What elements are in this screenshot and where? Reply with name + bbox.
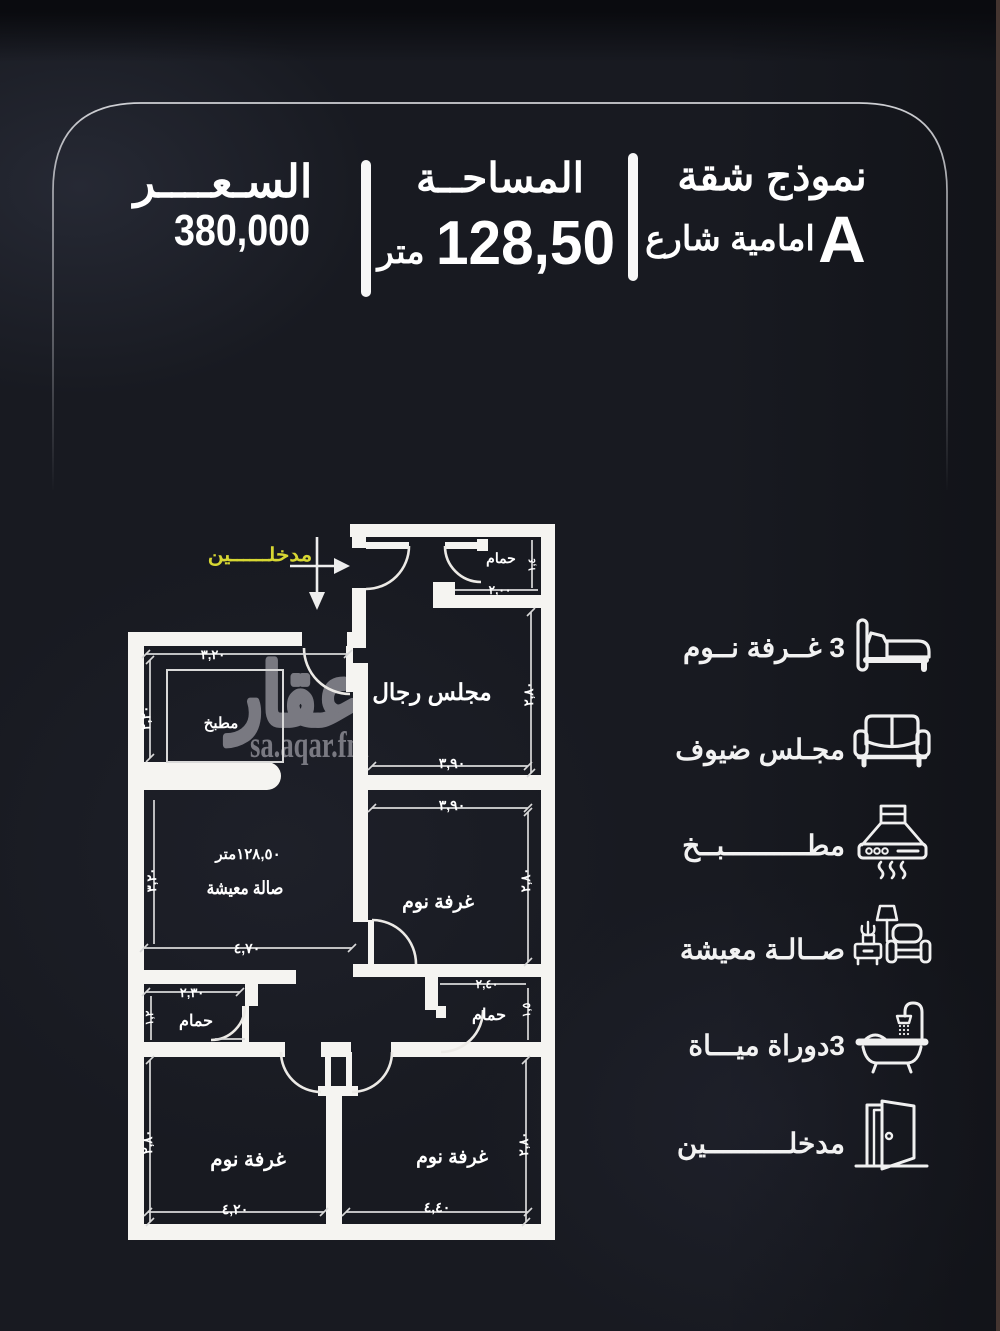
svg-text:٢,٠٠: ٢,٠٠ [489,583,512,597]
svg-text:المساحــة: المساحــة [416,155,584,201]
svg-text:مدخلــــــين: مدخلــــــين [208,545,313,566]
svg-text:حمام: حمام [486,550,516,567]
svg-text:امامية شارع: امامية شارع [645,220,815,259]
svg-text:٢,٨٠: ٢,٨٠ [140,1130,155,1155]
svg-text:٣,٩٠: ٣,٩٠ [439,797,465,813]
svg-text:sa.aqar.fm: sa.aqar.fm [250,724,369,765]
svg-text:صالة معيشة: صالة معيشة [207,878,284,898]
svg-text:١٢٨,٥٠متر: ١٢٨,٥٠متر [214,846,280,863]
svg-text:٤,٤٠: ٤,٤٠ [424,1199,450,1215]
svg-text:مجلس رجال: مجلس رجال [372,679,492,707]
svg-text:غرفة نوم: غرفة نوم [402,892,474,913]
svg-text:غرفة نوم: غرفة نوم [416,1147,488,1168]
svg-text:١,٥: ١,٥ [521,1002,533,1017]
svg-text:٣,٩٠: ٣,٩٠ [439,755,465,771]
svg-text:٢,٤٠: ٢,٤٠ [476,977,499,991]
svg-text:مطبخ: مطبخ [204,715,239,732]
svg-text:٣,٢٠: ٣,٢٠ [144,868,159,893]
svg-text:٤,٧٠: ٤,٧٠ [234,940,260,956]
svg-text:السـعــــر: السـعــــر [131,156,313,209]
svg-text:٢,٣٠: ٢,٣٠ [180,985,205,1000]
svg-text:128,50: 128,50 [436,209,615,278]
svg-text:غرفة نوم: غرفة نوم [210,1149,286,1172]
svg-text:حمام: حمام [472,1007,506,1025]
svg-text:٣,٢٠: ٣,٢٠ [201,647,226,662]
svg-text:١,٢: ١,٢ [144,1010,156,1025]
svg-text:A: A [818,202,866,276]
svg-text:متر: متر [375,233,424,272]
svg-text:٢,٨٠: ٢,٨٠ [518,868,533,893]
svg-text:٢,٨٠: ٢,٨٠ [516,1132,531,1157]
svg-text:٢,٢٠: ٢,٢٠ [138,706,153,731]
svg-text:٤,٢٠: ٤,٢٠ [222,1201,248,1217]
svg-text:١,٤: ١,٤ [527,558,538,572]
svg-text:نموذج شقة: نموذج شقة [677,153,867,201]
svg-text:380,000: 380,000 [174,206,310,255]
svg-text:حمام: حمام [179,1013,213,1031]
svg-text:٢,٨٠: ٢,٨٠ [521,682,536,707]
